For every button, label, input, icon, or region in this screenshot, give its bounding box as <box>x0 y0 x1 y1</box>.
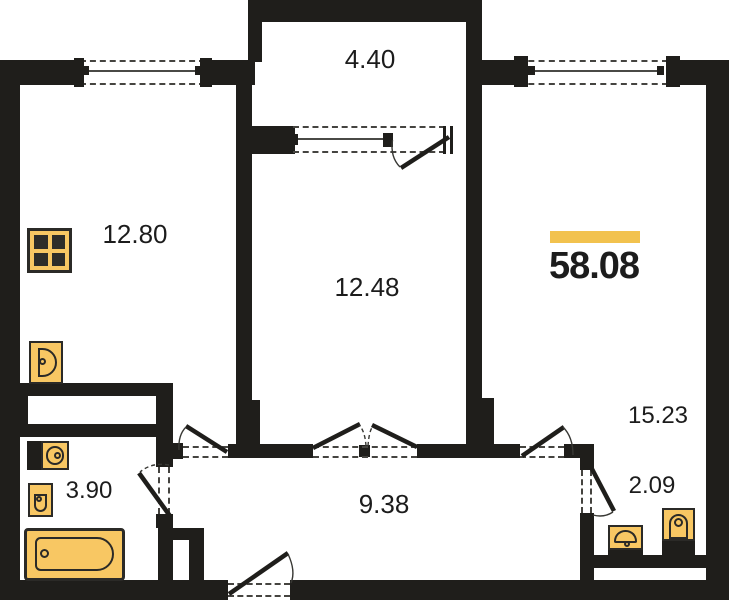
bathroom-sink-icon <box>41 441 69 470</box>
bathtub-drain <box>40 549 49 558</box>
wall-top-left-a <box>0 60 80 85</box>
room-right-door-opening <box>520 446 564 448</box>
bathtub-icon <box>24 528 125 581</box>
kitchen-door-opening-b <box>183 456 228 458</box>
wall-wc-left-top <box>580 458 594 470</box>
wall-wc-left-bottom <box>580 513 594 580</box>
wc-door-opening <box>581 470 583 513</box>
room-right-door-opening-b <box>520 456 564 458</box>
balcony-window-glass-line <box>295 138 383 140</box>
kitchen-door-leaf <box>186 426 227 452</box>
toilet-tank <box>662 541 695 557</box>
kitchen-area-label: 12.80 <box>95 221 175 248</box>
toilet-icon <box>662 508 695 541</box>
entry-door-opening-b <box>228 595 290 597</box>
double-door-right-leaf <box>372 425 417 447</box>
double-door-left-leaf <box>313 424 360 448</box>
double-door-right-arc <box>368 426 373 446</box>
bathroom-niche-slot <box>28 396 156 424</box>
wall-hallway-c <box>564 444 594 458</box>
wall-right-outer <box>706 85 729 600</box>
wc-door-opening-b <box>590 470 592 513</box>
wall-room-center-top-stub <box>252 126 295 154</box>
wall-bathroom-right-top <box>156 437 173 467</box>
wall-hallway-b <box>417 444 520 458</box>
wall-left-outer <box>0 60 20 600</box>
floor-plan: 12.80 4.40 12.48 58.08 15.23 2.09 3.90 9… <box>0 0 729 600</box>
double-door-opening-b <box>313 456 417 458</box>
bathroom-door-leaf <box>139 473 170 516</box>
bathroom-door-opening-b <box>168 467 170 514</box>
stove-burner <box>34 235 48 249</box>
stove-burner <box>52 235 66 249</box>
total-area-accent-bar <box>550 231 640 243</box>
wc-sink-drain <box>624 541 630 547</box>
room-right-area-label: 15.23 <box>618 403 698 428</box>
kitchen-door-opening <box>183 446 228 448</box>
balcony-door-frame-a <box>443 126 446 154</box>
wall-kitchen-divider <box>236 85 252 400</box>
wall-bottom-left <box>0 580 228 600</box>
bathroom-area-label: 3.90 <box>56 478 122 503</box>
bathroom-sink-mount <box>27 441 41 470</box>
washbasin-icon <box>28 483 53 517</box>
wc-door-arc <box>593 512 613 516</box>
right-window-outer-line <box>518 60 668 62</box>
balcony-window-outer-line <box>293 126 445 128</box>
balcony-door-arc <box>392 140 400 167</box>
kitchen-window-glass-line <box>82 70 203 72</box>
wc-sink-icon <box>608 525 643 550</box>
stove-icon <box>27 228 72 273</box>
entry-door-leaf <box>229 553 288 594</box>
wall-top-right-b <box>678 60 729 85</box>
balcony-door-frame-b <box>450 126 453 154</box>
kitchen-window-tick-right <box>195 66 202 75</box>
right-window-jamb-right <box>666 56 680 87</box>
hallway-area-label: 9.38 <box>348 491 420 518</box>
stove-burner <box>34 253 48 267</box>
washbasin-drain <box>36 496 42 502</box>
balcony-window-inner-line <box>293 151 445 153</box>
balcony-window-tick <box>290 134 298 145</box>
wall-bottom-right <box>290 580 729 600</box>
bathroom-sink-drain <box>54 452 61 459</box>
room-center-area-label: 12.48 <box>322 274 412 301</box>
kitchen-window-outer-line <box>80 60 205 62</box>
right-window-tick-left <box>528 66 535 75</box>
kitchen-sink-icon <box>29 341 63 384</box>
room-right-door-leaf <box>522 427 564 456</box>
entry-door-opening <box>228 583 290 585</box>
entry-door-arc <box>288 554 293 583</box>
right-window-glass-line <box>528 70 660 72</box>
double-door-left-arc <box>359 425 366 446</box>
toilet-flush <box>674 518 683 527</box>
kitchen-sink-drain <box>39 358 46 365</box>
balcony-area-label: 4.40 <box>330 46 410 73</box>
double-door-opening <box>313 446 417 448</box>
wc-sink-base <box>608 550 643 558</box>
kitchen-window-inner-line <box>80 83 205 85</box>
wall-top-left-b <box>205 60 255 85</box>
bathroom-door-opening <box>158 467 160 514</box>
wall-bathroom-right-bottom <box>156 514 173 528</box>
stove-burner <box>52 253 66 267</box>
wall-balcony-top <box>248 0 480 22</box>
wc-area-label: 2.09 <box>620 473 684 498</box>
balcony-door-post <box>383 133 393 147</box>
right-window-tick-right <box>657 66 664 75</box>
kitchen-window-tick-left <box>82 66 89 75</box>
wall-hallway-a <box>228 444 313 458</box>
total-area-label: 58.08 <box>538 247 650 287</box>
right-window-jamb-left <box>514 56 528 87</box>
kitchen-door-jamb <box>172 443 183 459</box>
wall-top-right-a <box>480 60 518 85</box>
right-window-inner-line <box>518 83 668 85</box>
duct-right <box>189 528 204 580</box>
wc-door-leaf <box>592 469 614 511</box>
